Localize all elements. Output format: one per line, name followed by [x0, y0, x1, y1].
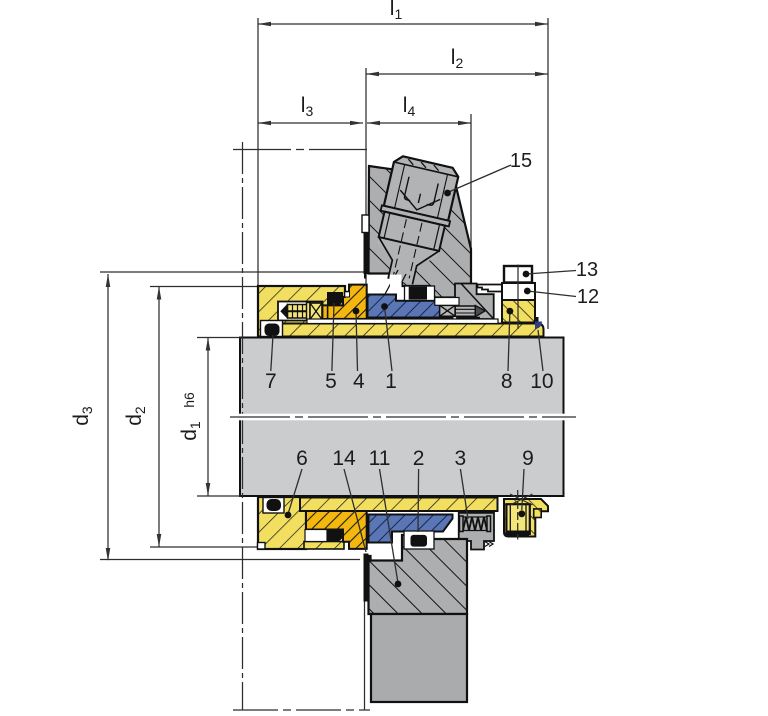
svg-text:14: 14 — [332, 447, 356, 470]
svg-text:h6: h6 — [181, 392, 197, 408]
svg-text:9: 9 — [522, 447, 534, 470]
svg-text:13: 13 — [576, 259, 598, 281]
svg-text:4: 4 — [353, 370, 365, 393]
svg-text:7: 7 — [265, 370, 277, 393]
svg-text:12: 12 — [577, 286, 599, 308]
svg-text:6: 6 — [296, 447, 308, 470]
svg-text:2: 2 — [413, 447, 425, 470]
svg-text:3: 3 — [455, 447, 467, 470]
svg-text:8: 8 — [501, 370, 513, 393]
svg-text:1: 1 — [385, 370, 397, 393]
svg-text:11: 11 — [369, 447, 391, 470]
svg-text:10: 10 — [530, 370, 553, 393]
svg-text:5: 5 — [325, 370, 337, 393]
svg-text:15: 15 — [510, 150, 532, 172]
